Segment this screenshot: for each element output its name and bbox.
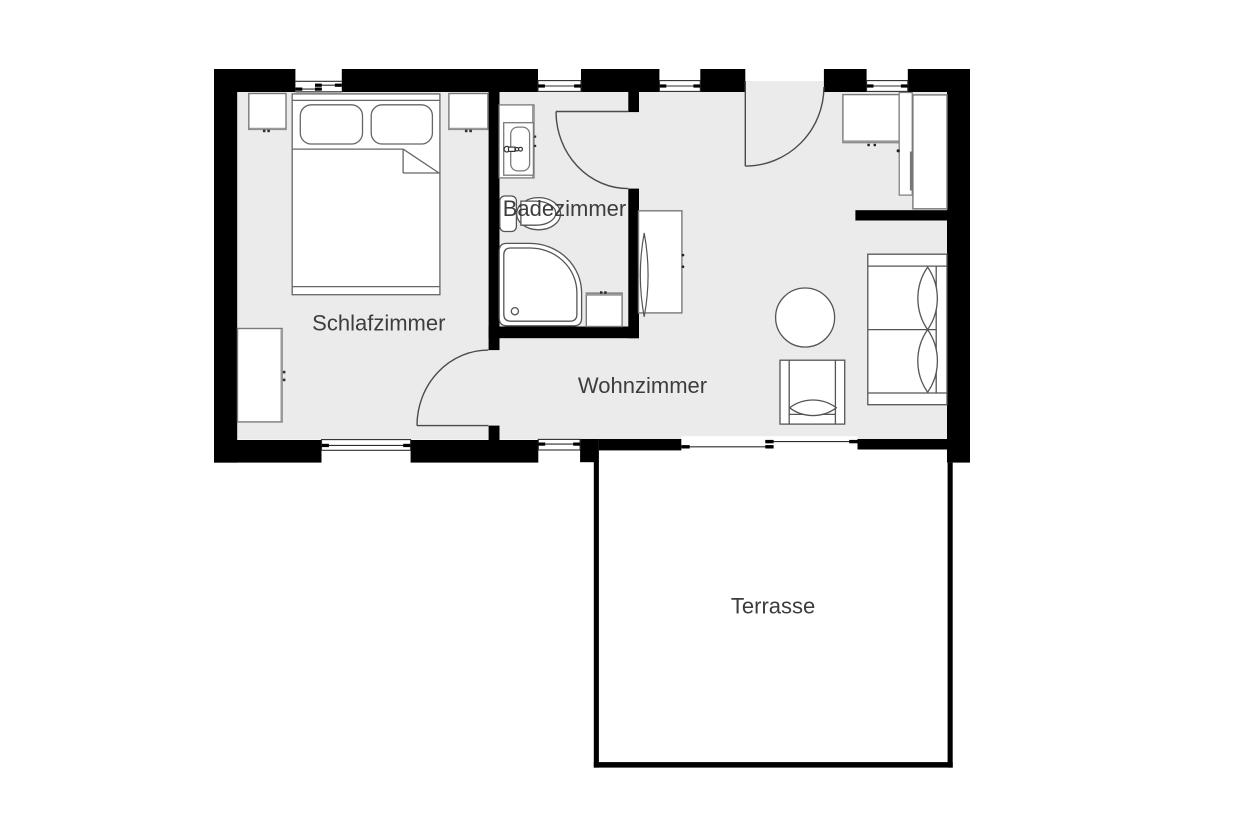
svg-text:Wohnzimmer: Wohnzimmer [578, 373, 707, 398]
svg-text:Terrasse: Terrasse [731, 594, 815, 619]
svg-text:Badezimmer: Badezimmer [503, 196, 626, 221]
svg-text:Schlafzimmer: Schlafzimmer [312, 310, 445, 335]
